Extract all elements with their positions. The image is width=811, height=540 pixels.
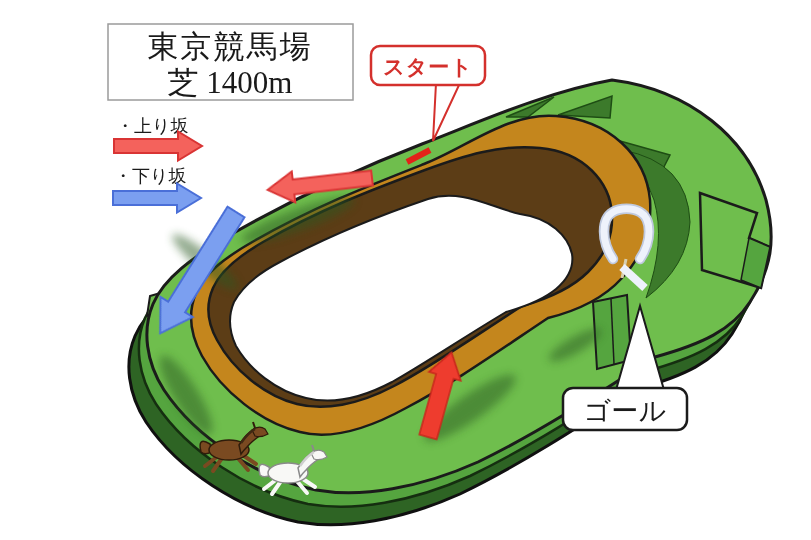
legend-downhill-label: ・下り坂 xyxy=(114,166,186,186)
goal-label: ゴール xyxy=(584,396,666,426)
racecourse-svg: ゴール スタート 東京競馬場 芝 1400m ・上り坂 ・下り坂 xyxy=(0,0,811,540)
start-label: スタート xyxy=(383,55,472,78)
course-title-line1: 東京競馬場 xyxy=(148,29,313,64)
title-box: 東京競馬場 芝 1400m xyxy=(108,24,353,100)
course-title-line2: 芝 1400m xyxy=(168,65,293,100)
racecourse-diagram: ゴール スタート 東京競馬場 芝 1400m ・上り坂 ・下り坂 xyxy=(0,0,811,540)
legend: ・上り坂 ・下り坂 xyxy=(113,116,202,213)
legend-downhill-arrow-icon xyxy=(113,184,201,213)
